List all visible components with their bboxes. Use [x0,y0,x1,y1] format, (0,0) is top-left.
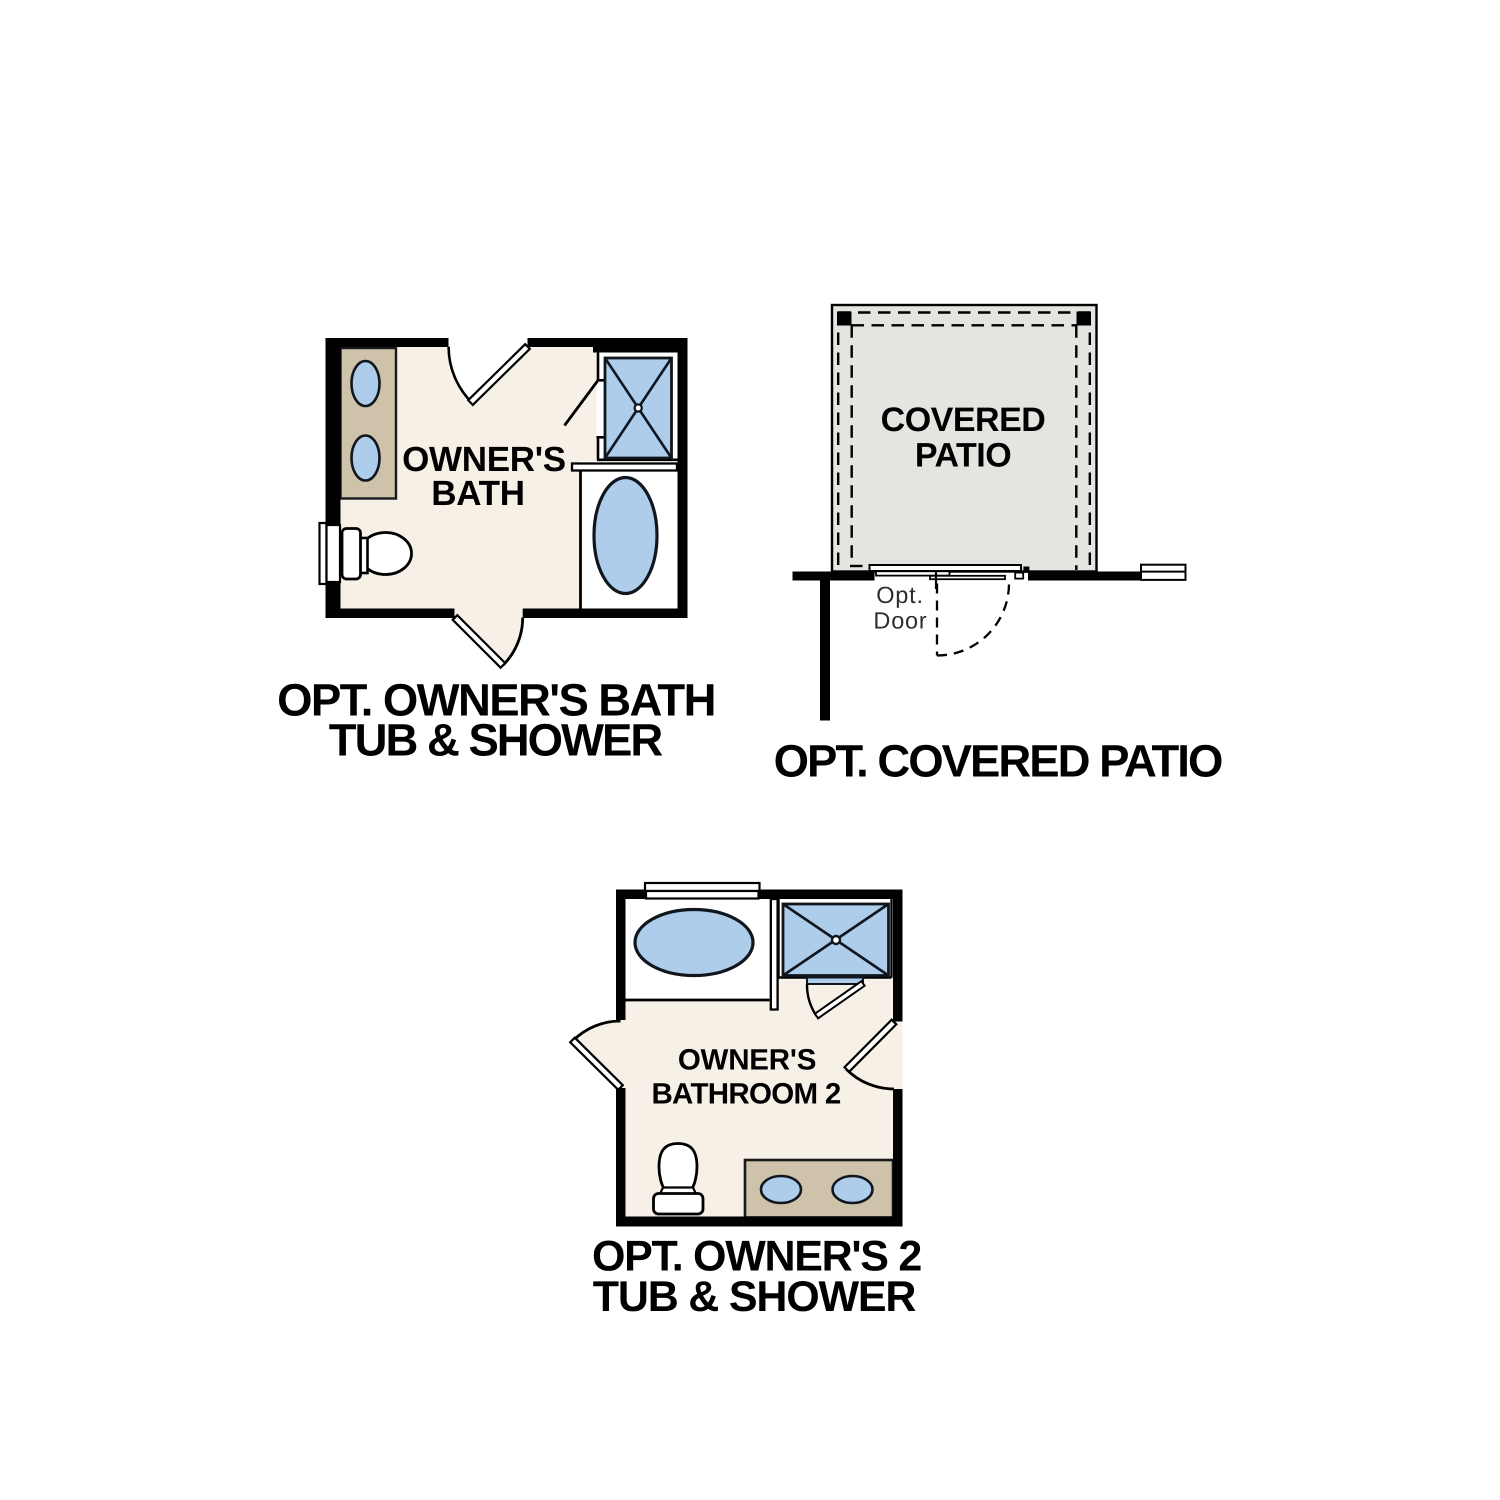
svg-text:Door: Door [873,608,927,634]
svg-text:TUB & SHOWER: TUB & SHOWER [593,1273,917,1321]
svg-text:PATIO: PATIO [915,437,1011,475]
svg-text:OPT. COVERED PATIO: OPT. COVERED PATIO [774,736,1222,787]
svg-text:TUB & SHOWER: TUB & SHOWER [329,715,663,766]
svg-text:BATHROOM 2: BATHROOM 2 [651,1078,840,1111]
svg-text:Opt.: Opt. [876,582,924,608]
svg-text:COVERED: COVERED [881,401,1046,439]
svg-text:BATH: BATH [431,474,524,513]
svg-text:OWNER'S: OWNER'S [678,1044,816,1077]
